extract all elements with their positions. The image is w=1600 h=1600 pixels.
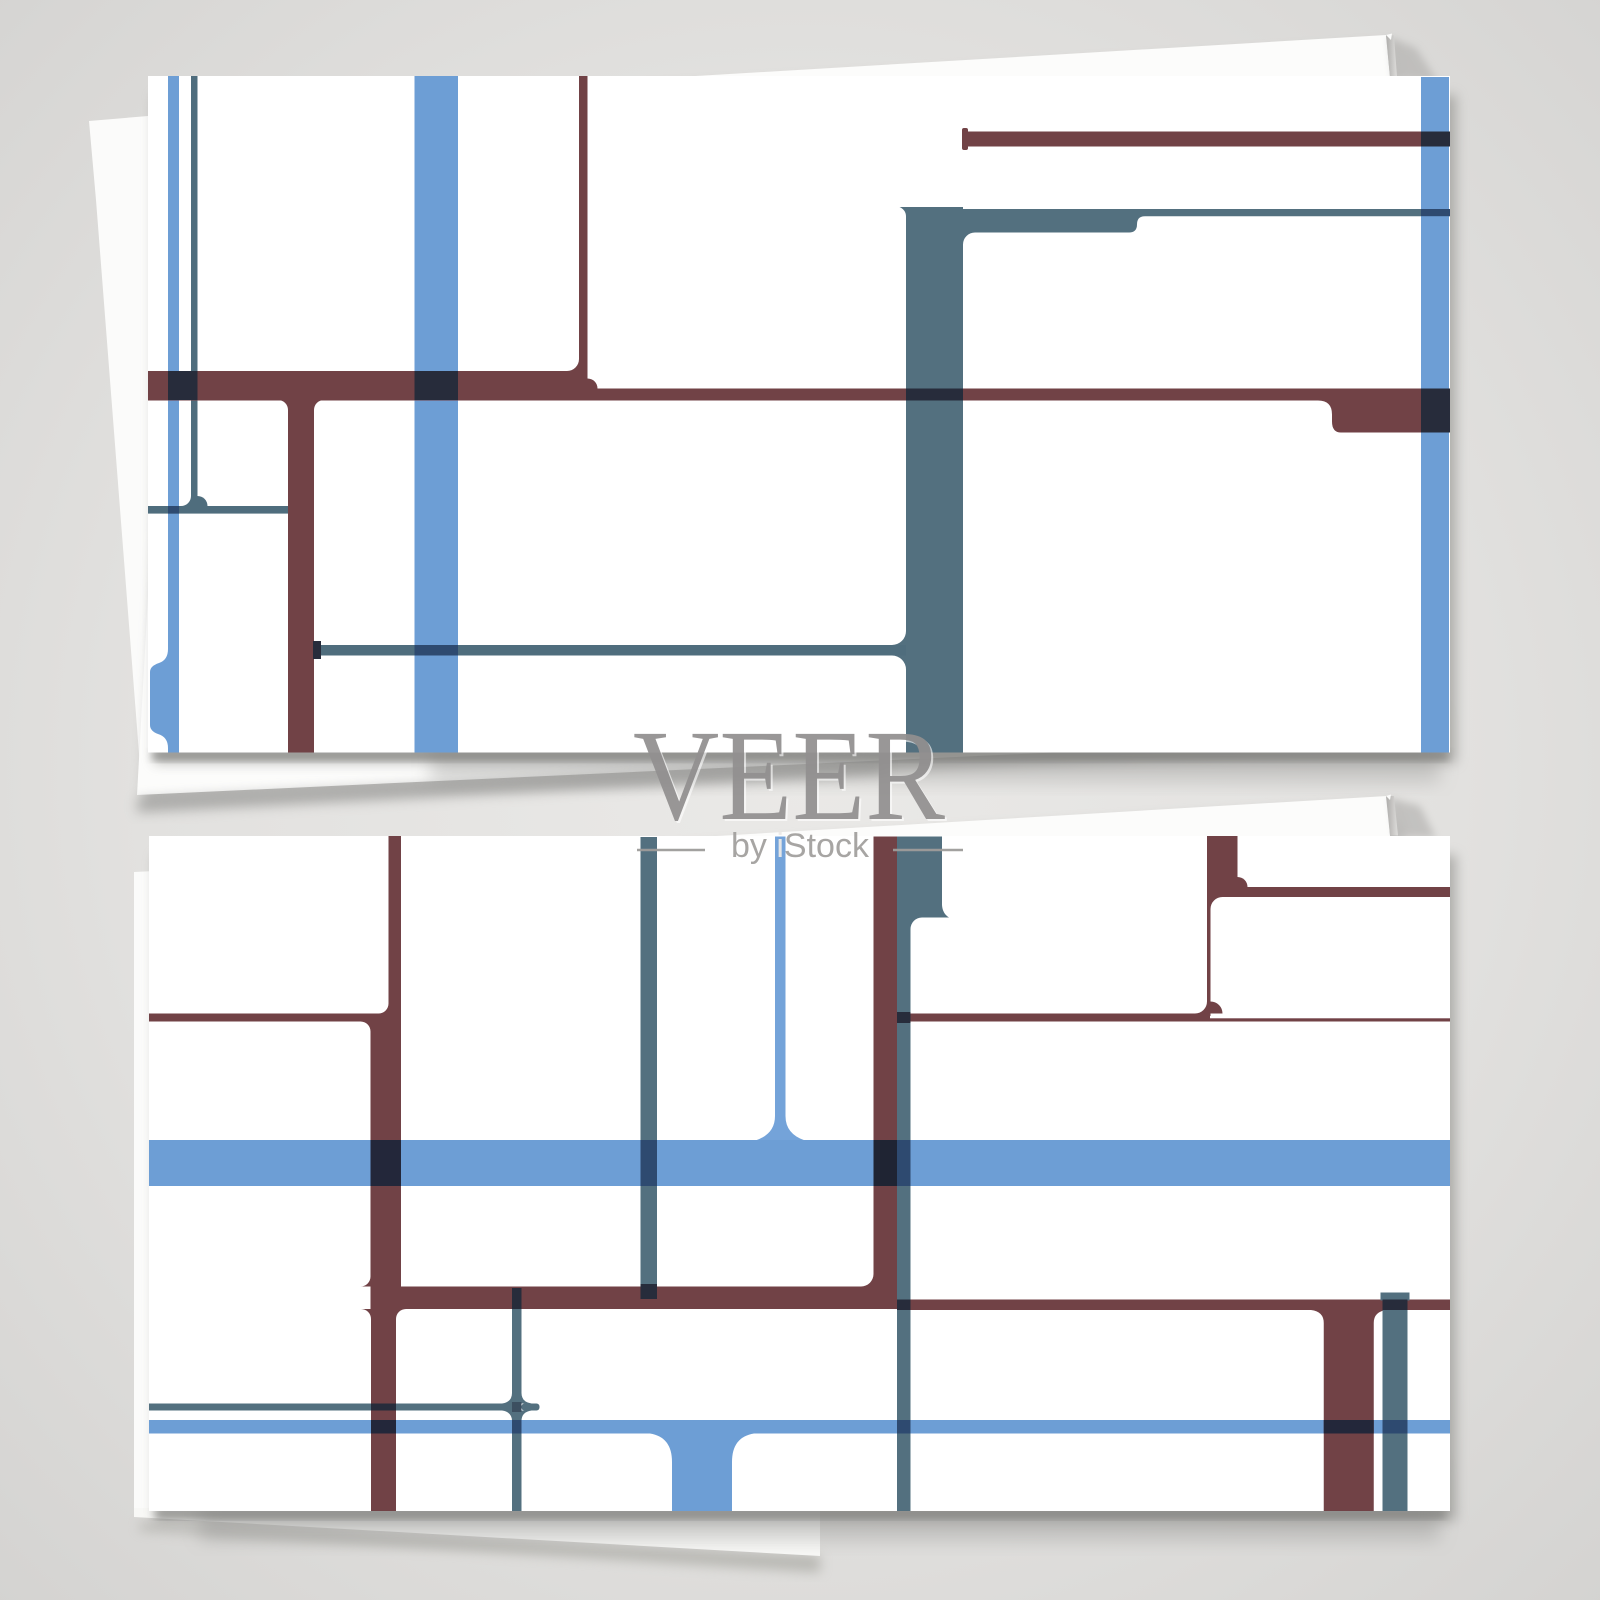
svg-text:by iStock: by iStock [731,827,870,865]
